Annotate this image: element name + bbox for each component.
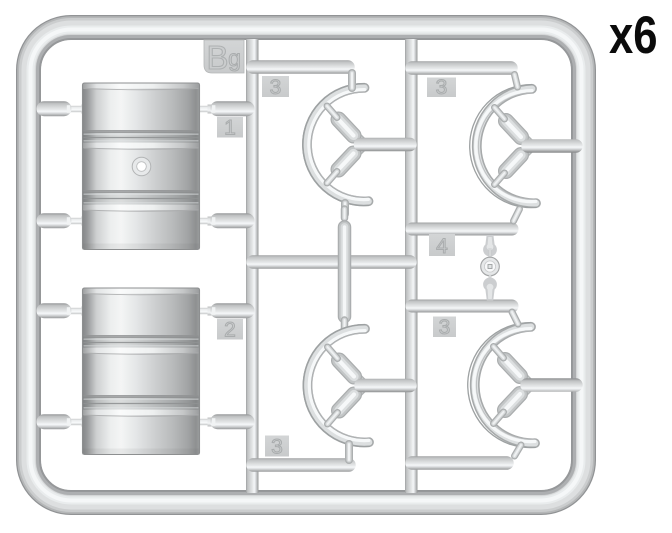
- svg-text:4: 4: [436, 235, 448, 258]
- svg-text:B: B: [206, 39, 228, 76]
- svg-text:g: g: [228, 45, 241, 71]
- svg-text:2: 2: [224, 318, 236, 341]
- svg-text:3: 3: [271, 435, 283, 458]
- svg-text:3: 3: [270, 76, 282, 99]
- svg-text:3: 3: [439, 316, 451, 339]
- svg-text:3: 3: [436, 76, 448, 99]
- svg-text:x6: x6: [609, 6, 658, 65]
- svg-text:1: 1: [224, 116, 236, 139]
